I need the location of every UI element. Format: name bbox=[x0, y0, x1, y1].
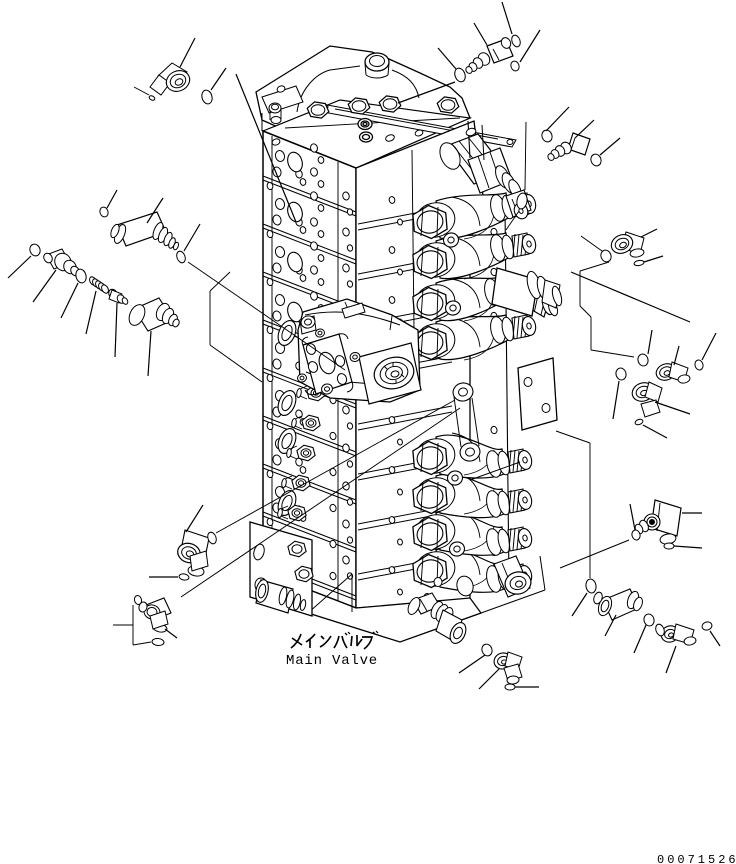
svg-text:Main Valve: Main Valve bbox=[286, 653, 378, 669]
svg-text:00071526: 00071526 bbox=[657, 853, 736, 864]
